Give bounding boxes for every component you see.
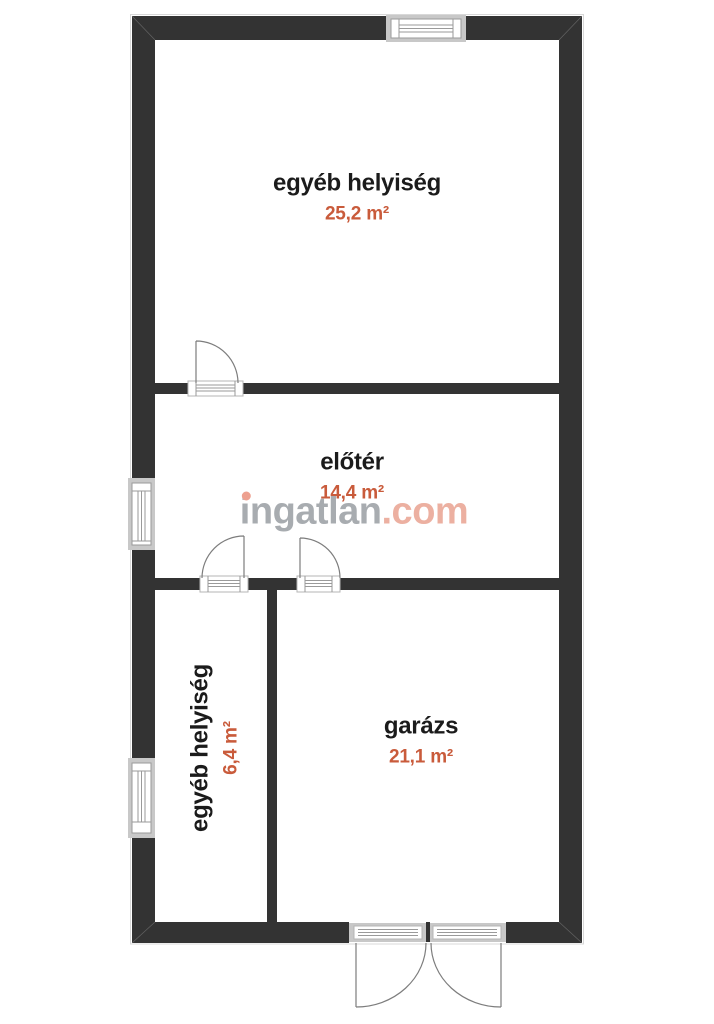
room-label-egyeb-helyiseg-felso: egyéb helyiség 25,2 m² (273, 169, 441, 224)
room-area: 14,4 m² (320, 482, 384, 504)
room-area: 6,4 m² (220, 664, 242, 832)
floorplan: ingatlan.com (0, 0, 714, 1024)
room-area: 25,2 m² (273, 203, 441, 225)
garage-double-door-icon (349, 922, 506, 1007)
room-label-garazs: garázs 21,1 m² (384, 712, 458, 767)
window-top-icon (386, 15, 466, 42)
floorplan-drawing (0, 0, 714, 1024)
room-area: 21,1 m² (384, 746, 458, 768)
door-garage-interior-icon (297, 538, 340, 592)
door-small-room-icon (200, 536, 248, 592)
room-name: előtér (320, 448, 384, 476)
window-left-lower-icon (128, 758, 155, 838)
room-name: egyéb helyiség (273, 169, 441, 197)
room-name: garázs (384, 712, 458, 740)
door-top-room-icon (188, 341, 243, 396)
window-left-upper-icon (128, 478, 155, 550)
room-label-egyeb-helyiseg-also: egyéb helyiség 6,4 m² (186, 664, 241, 832)
room-label-eloter: előtér 14,4 m² (320, 448, 384, 503)
room-name: egyéb helyiség (186, 664, 214, 832)
